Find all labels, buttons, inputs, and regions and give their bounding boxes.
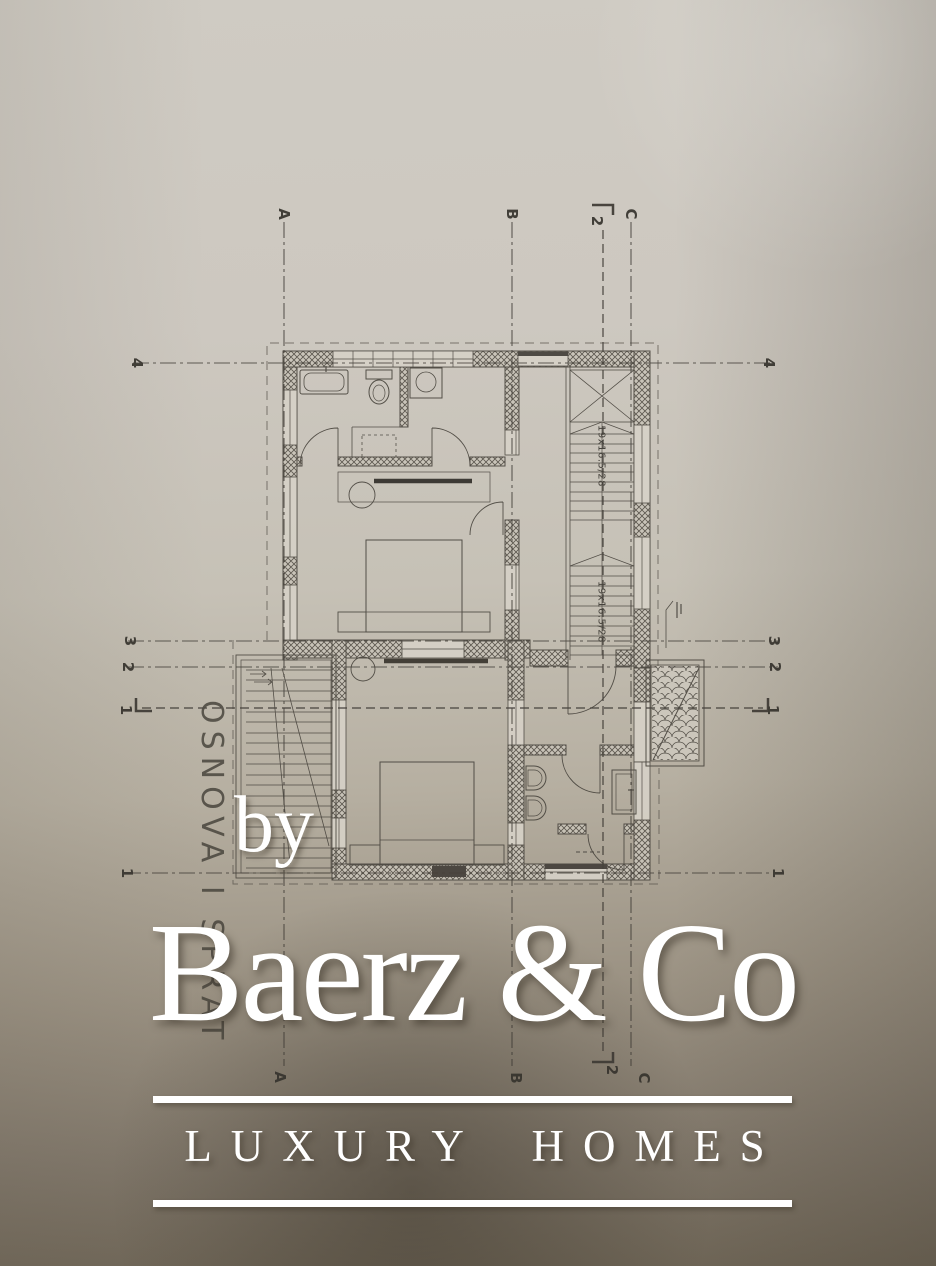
brand-name: Baerz & Co — [149, 901, 797, 1043]
watermark: by Baerz & Co LUXURY HOMES — [0, 0, 936, 1266]
brand-rule-bottom — [153, 1200, 792, 1207]
watermark-by: by — [234, 780, 314, 871]
brand-tagline: LUXURY HOMES — [184, 1124, 783, 1169]
brand-rule-top — [153, 1096, 792, 1103]
